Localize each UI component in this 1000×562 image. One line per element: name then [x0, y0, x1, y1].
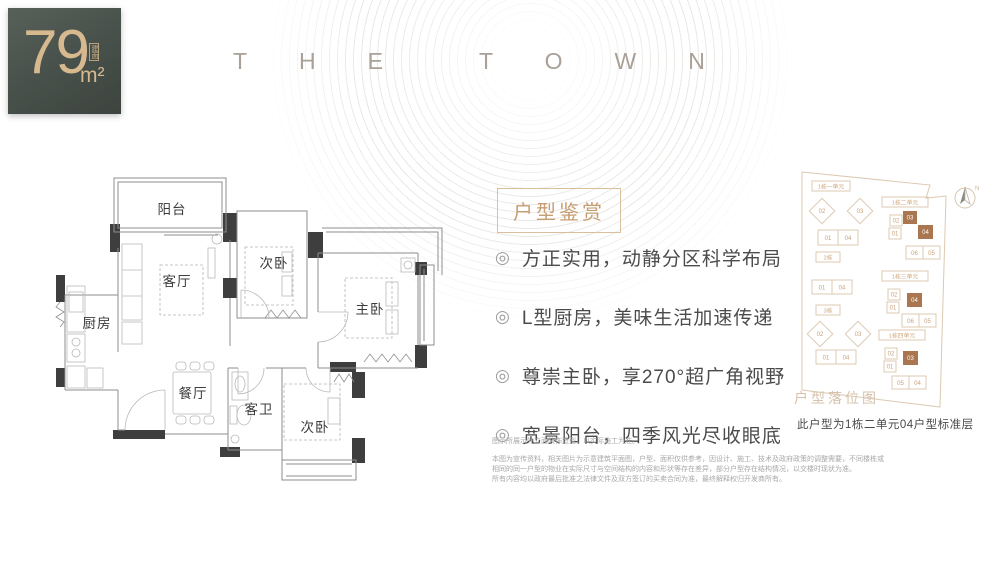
site-cluster-l2: 2栋 01 04	[812, 252, 852, 294]
unit-label: 06	[911, 251, 918, 257]
brand-word-the: THE	[233, 48, 435, 75]
unit-label: 02	[891, 293, 898, 299]
unit-label: 04	[922, 230, 929, 236]
area-unit: m²	[80, 64, 105, 88]
bullet-icon: ◎	[495, 248, 511, 268]
unit-label: 02	[888, 352, 895, 358]
feature-text: 尊崇主卧，享270°超广角视野	[522, 362, 785, 389]
feature-item: ◎ 方正实用，动静分区科学布局	[495, 244, 785, 271]
room-label-kitchen: 厨房	[83, 316, 112, 331]
unit-label: 06	[907, 319, 914, 325]
feature-text: L型厨房，美味生活加速传递	[522, 303, 774, 330]
compass-icon: N	[955, 186, 979, 208]
unit-label: 04	[911, 298, 918, 304]
unit-label: 05	[928, 251, 935, 257]
unit-label: 04	[839, 286, 846, 292]
room-label-dining: 餐厅	[179, 386, 208, 401]
unit-label: 04	[914, 381, 921, 387]
unit-label: 04	[843, 356, 850, 362]
room-label-living: 客厅	[163, 273, 192, 289]
brand-word-town: TOWN	[479, 48, 757, 75]
cluster-label: 2栋	[823, 254, 832, 262]
feature-item: ◎ L型厨房，美味生活加速传递	[495, 303, 785, 330]
brand-wordmark: THE TOWN	[233, 48, 757, 75]
cluster-label: 1栋三单元	[892, 273, 919, 281]
disclaimer-paragraph: 所有内容均以政府最后批准之法律文件及双方签订的买卖合同为准，最终解释权归开发商所…	[492, 475, 888, 485]
unit-label: 04	[845, 236, 852, 242]
furniture	[67, 234, 415, 443]
unit-label: 05	[924, 319, 931, 325]
feature-item: ◎ 尊崇主卧，享270°超广角视野	[495, 362, 785, 389]
unit-label: 01	[890, 306, 897, 312]
unit-label: 03	[855, 332, 862, 338]
unit-label: 02	[893, 219, 900, 225]
cluster-label: 1栋二单元	[892, 199, 919, 207]
bullet-icon: ◎	[495, 366, 511, 386]
unit-label: 02	[819, 209, 826, 215]
floor-plan: 阳台 客厅 次卧 主卧 厨房 餐厅 客卫 次卧	[52, 162, 482, 482]
unit-label: 01	[892, 232, 899, 238]
bullet-icon: ◎	[495, 307, 511, 327]
unit-label: 01	[887, 365, 894, 371]
area-badge: 79 建面 m²	[8, 8, 121, 114]
unit-label: 01	[825, 236, 832, 242]
unit-label: 03	[907, 356, 914, 362]
cluster-label: 1栋一单元	[818, 183, 845, 191]
area-type-label: 建面	[89, 43, 99, 61]
cluster-label: 3栋	[823, 307, 832, 315]
site-cluster-r1: 1栋二单元 02 01 03 04 06 05	[882, 197, 940, 259]
site-cluster-l1: 1栋一单元 02 03 01 04	[809, 181, 872, 245]
feature-text: 方正实用，动静分区科学布局	[522, 244, 782, 271]
room-label-bedroom-bottom: 次卧	[301, 420, 330, 435]
unit-label: 01	[823, 356, 830, 362]
room-label-balcony: 阳台	[158, 202, 187, 217]
unit-label: 01	[819, 286, 826, 292]
unit-label: 02	[817, 332, 824, 338]
site-cluster-r3: 1栋四单元 02 01 03 05 04	[879, 330, 926, 389]
room-label-bedroom-top: 次卧	[260, 256, 289, 271]
unit-label: 03	[857, 209, 864, 215]
site-plan: 1栋一单元 02 03 01 04 2栋 01 04 3栋 02 03	[790, 162, 980, 412]
compass-north-label: N	[975, 186, 979, 192]
unit-label: 05	[897, 381, 904, 387]
site-plan-title: 户型落位图	[794, 388, 879, 408]
area-value: 79	[23, 22, 88, 84]
site-plan-caption: 此户型为1栋二单元04户型标准层	[797, 416, 974, 432]
disclaimer-line: 图示所展示外立面装饰造型，以实际施工为准。	[492, 437, 888, 446]
cluster-label: 1栋四单元	[889, 332, 916, 340]
site-cluster-l3: 3栋 02 03 01 04	[807, 305, 870, 364]
unit-label: 03	[907, 216, 914, 222]
room-label-bath: 客卫	[245, 401, 274, 417]
features-title: 户型鉴赏	[497, 188, 621, 233]
disclaimer-paragraph: 本图为宣传资料，相关图片为示意建筑平面图，户型、面积仅供参考，因设计、施工、技术…	[492, 455, 888, 474]
disclaimer: 图示所展示外立面装饰造型，以实际施工为准。 本图为宣传资料，相关图片为示意建筑平…	[492, 437, 888, 486]
flyer-canvas: THE TOWN 79 建面 m²	[0, 0, 1000, 562]
site-cluster-r2: 1栋三单元 02 01 04 06 05	[882, 271, 936, 327]
room-label-master: 主卧	[356, 302, 385, 317]
